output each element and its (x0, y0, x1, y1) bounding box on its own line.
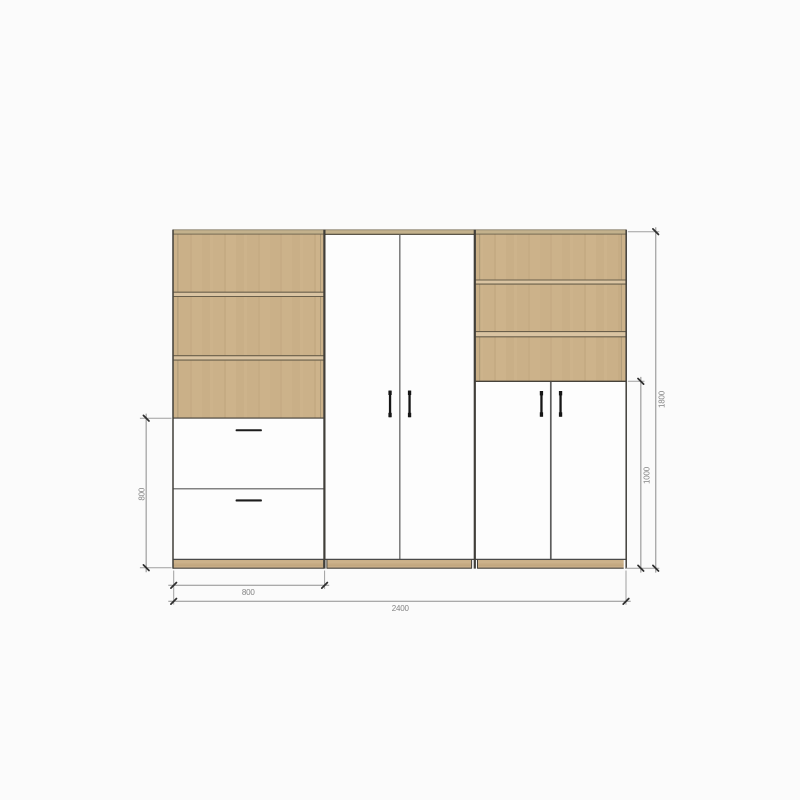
svg-text:1000: 1000 (642, 466, 651, 484)
svg-text:800: 800 (137, 487, 146, 500)
svg-text:1800: 1800 (658, 390, 667, 408)
svg-text:800: 800 (242, 588, 255, 597)
svg-text:2400: 2400 (392, 604, 410, 613)
